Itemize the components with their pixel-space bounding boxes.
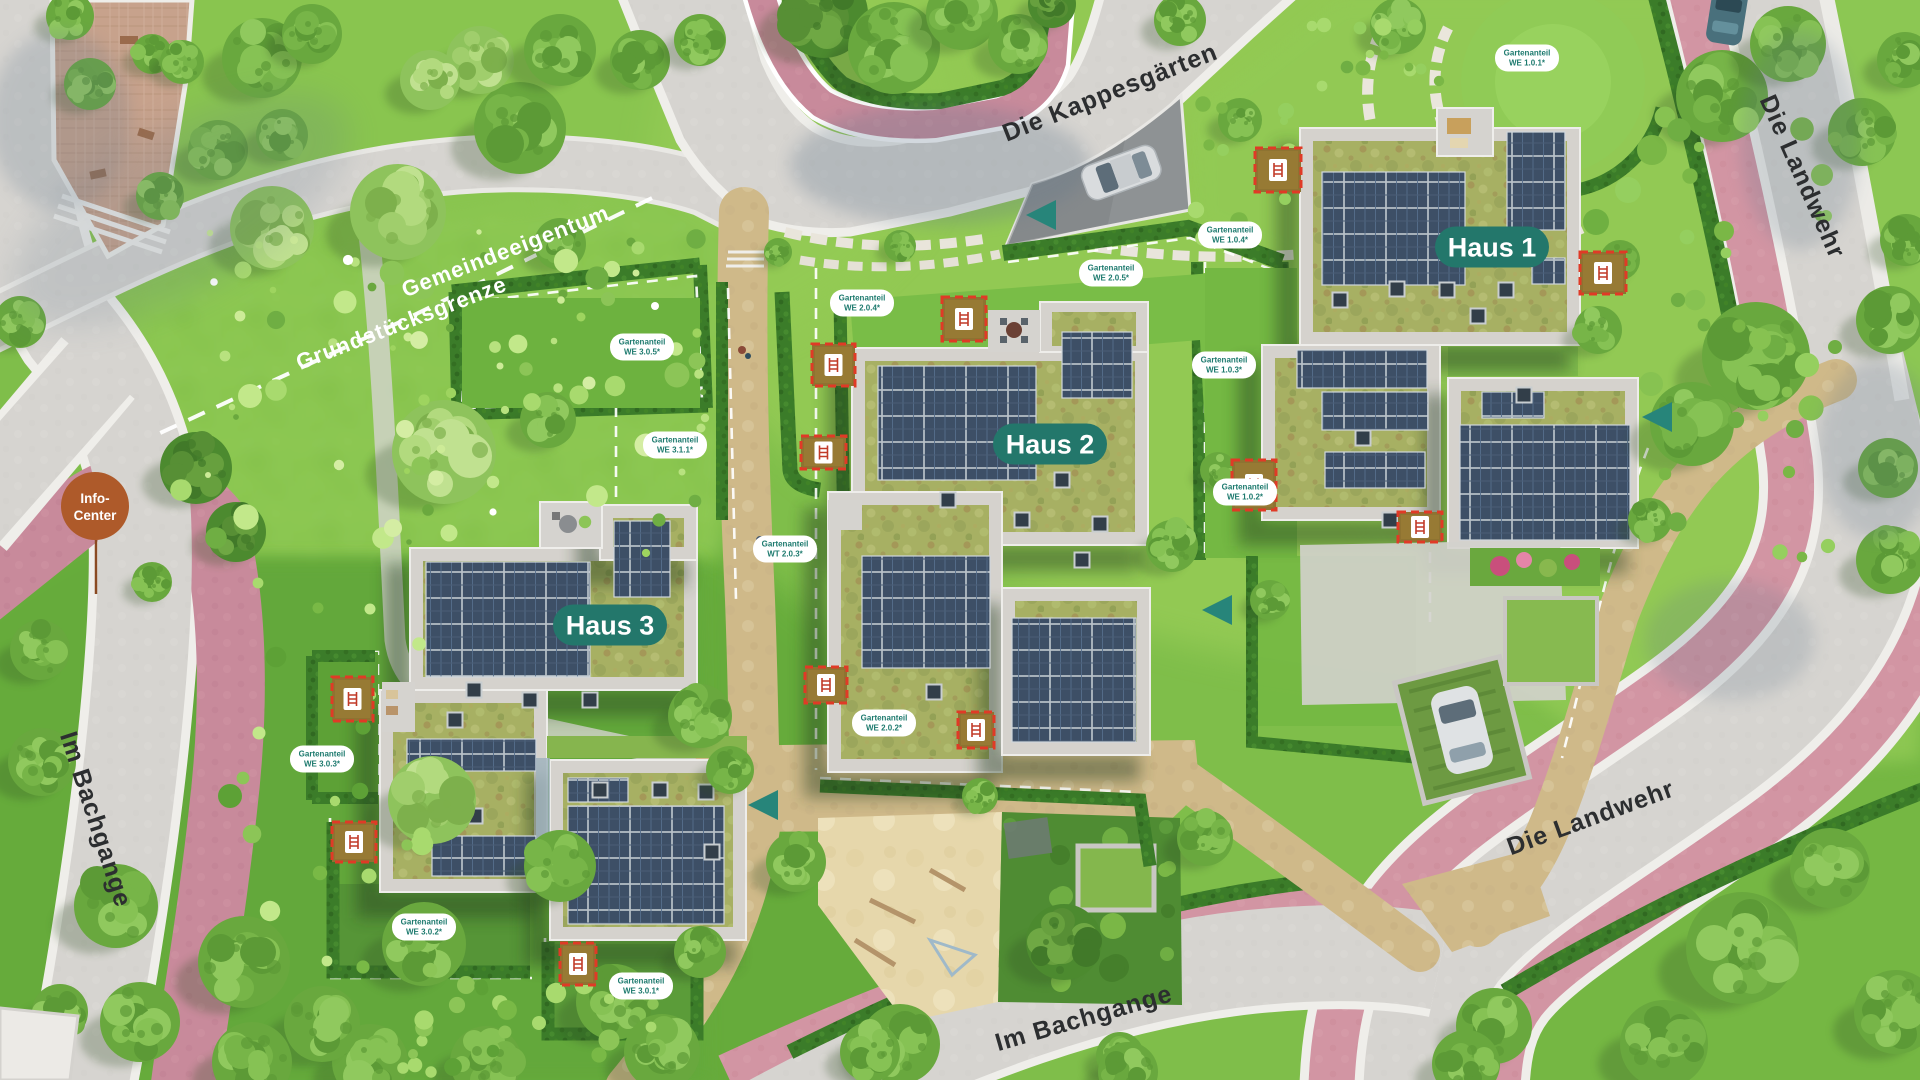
svg-text:WE 3.0.5*: WE 3.0.5* (624, 348, 661, 357)
svg-text:Gartenanteil: Gartenanteil (618, 977, 665, 986)
svg-text:Gartenanteil: Gartenanteil (299, 750, 346, 759)
svg-text:WE 1.0.2*: WE 1.0.2* (1227, 493, 1264, 502)
svg-text:Gartenanteil: Gartenanteil (619, 338, 666, 347)
svg-text:Gartenanteil: Gartenanteil (652, 436, 699, 445)
svg-text:WE 1.0.4*: WE 1.0.4* (1212, 236, 1249, 245)
svg-text:WE 1.0.1*: WE 1.0.1* (1509, 59, 1546, 68)
svg-text:Gartenanteil: Gartenanteil (861, 714, 908, 723)
svg-text:Haus 2: Haus 2 (1006, 430, 1095, 460)
svg-text:WE 3.0.2*: WE 3.0.2* (406, 928, 443, 937)
svg-text:Info-: Info- (80, 491, 109, 506)
svg-text:Haus 1: Haus 1 (1448, 233, 1537, 263)
svg-text:Gartenanteil: Gartenanteil (401, 918, 448, 927)
svg-text:Gartenanteil: Gartenanteil (1504, 49, 1551, 58)
svg-text:Haus 3: Haus 3 (566, 611, 655, 641)
svg-text:Gartenanteil: Gartenanteil (839, 294, 886, 303)
svg-text:Gartenanteil: Gartenanteil (1201, 356, 1248, 365)
svg-text:WE 2.0.2*: WE 2.0.2* (866, 724, 903, 733)
svg-text:Gartenanteil: Gartenanteil (1222, 483, 1269, 492)
svg-text:Gartenanteil: Gartenanteil (762, 540, 809, 549)
svg-text:WE 3.1.1*: WE 3.1.1* (657, 446, 694, 455)
svg-text:Center: Center (74, 508, 118, 523)
svg-text:WE 3.0.3*: WE 3.0.3* (304, 760, 341, 769)
svg-text:WE 2.0.5*: WE 2.0.5* (1093, 274, 1130, 283)
svg-text:Gartenanteil: Gartenanteil (1207, 226, 1254, 235)
svg-text:WT 2.0.3*: WT 2.0.3* (767, 550, 803, 559)
svg-text:WE 1.0.3*: WE 1.0.3* (1206, 366, 1243, 375)
svg-text:Gartenanteil: Gartenanteil (1088, 264, 1135, 273)
svg-text:WE 2.0.4*: WE 2.0.4* (844, 304, 881, 313)
svg-text:WE 3.0.1*: WE 3.0.1* (623, 987, 660, 996)
